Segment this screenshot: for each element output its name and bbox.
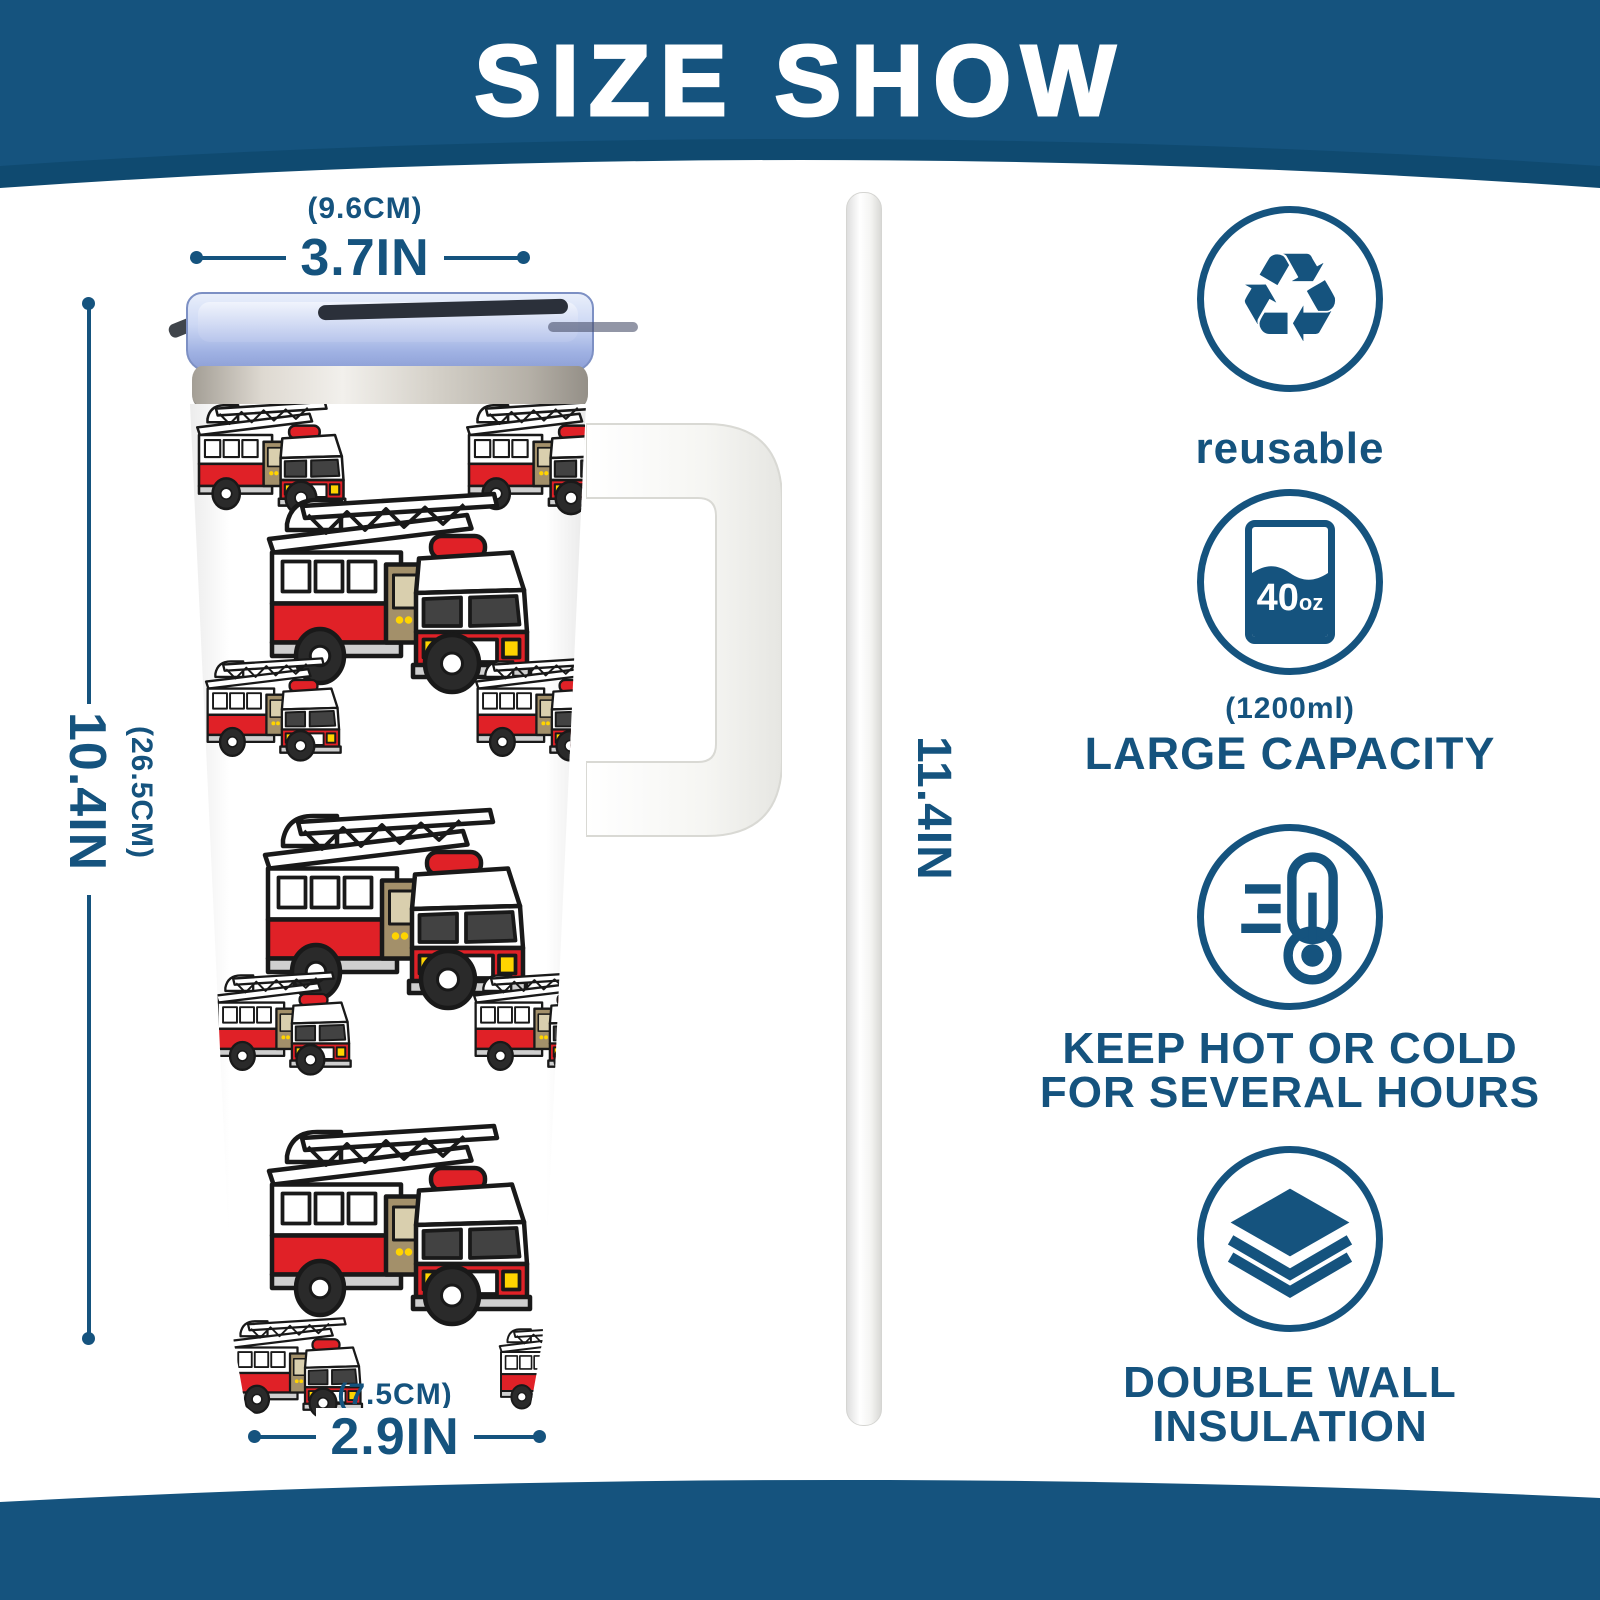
thermometer-icon [1197,824,1383,1010]
double-wall-icon [1197,1146,1383,1332]
fire-truck-art [242,1102,542,1327]
capacity-ml-label: (1200ml) [1015,692,1565,726]
height-dimension-line-lower [87,895,91,1335]
large-capacity-label: LARGE CAPACITY [1015,728,1565,780]
steel-rim [192,366,588,408]
bottom-diameter-cm-label: (7.5CM) [180,1378,610,1412]
keep-temp-label-line2: FOR SEVERAL HOURS [1015,1068,1565,1118]
footer-band [0,1470,1600,1600]
capacity-icon: 40oz [1197,489,1383,675]
fire-truck-art [202,960,357,1076]
lid-vent [548,322,638,332]
straw-length-label: 11.4IN [906,736,961,881]
height-cm-label: (26.5CM) [124,726,158,859]
size-show-infographic: SIZE SHOW (9.6CM) 3.7IN 10.4IN (26.5CM) [0,0,1600,1600]
double-wall-label-line1: DOUBLE WALL [1015,1358,1565,1408]
fire-truck-art [462,646,586,762]
recycle-icon: ♻ [1197,206,1383,392]
layers-glyph [1224,1177,1356,1301]
double-wall-label-line2: INSULATION [1015,1402,1565,1452]
tumbler-body-fire-truck-pattern [190,404,586,1422]
keep-temp-label-line1: KEEP HOT OR COLD [1015,1024,1565,1074]
tumbler-handle [586,422,782,838]
thermometer-glyph [1224,842,1356,992]
height-dim-bottom-dot [82,1332,95,1345]
straw [846,192,882,1426]
top-diameter-cm-label: (9.6CM) [150,192,580,226]
tumbler-lid [186,292,594,372]
recycle-glyph: ♻ [1234,237,1345,361]
page-title: SIZE SHOW [0,24,1600,139]
cup-icon: 40oz [1245,520,1335,644]
capacity-badge: 40oz [1252,579,1328,617]
fire-truck-art [192,646,347,762]
height-dimension-line-upper [87,306,91,704]
height-in-label: 10.4IN [57,712,117,871]
reusable-label: reusable [1015,424,1565,474]
fire-truck-art [460,960,586,1076]
